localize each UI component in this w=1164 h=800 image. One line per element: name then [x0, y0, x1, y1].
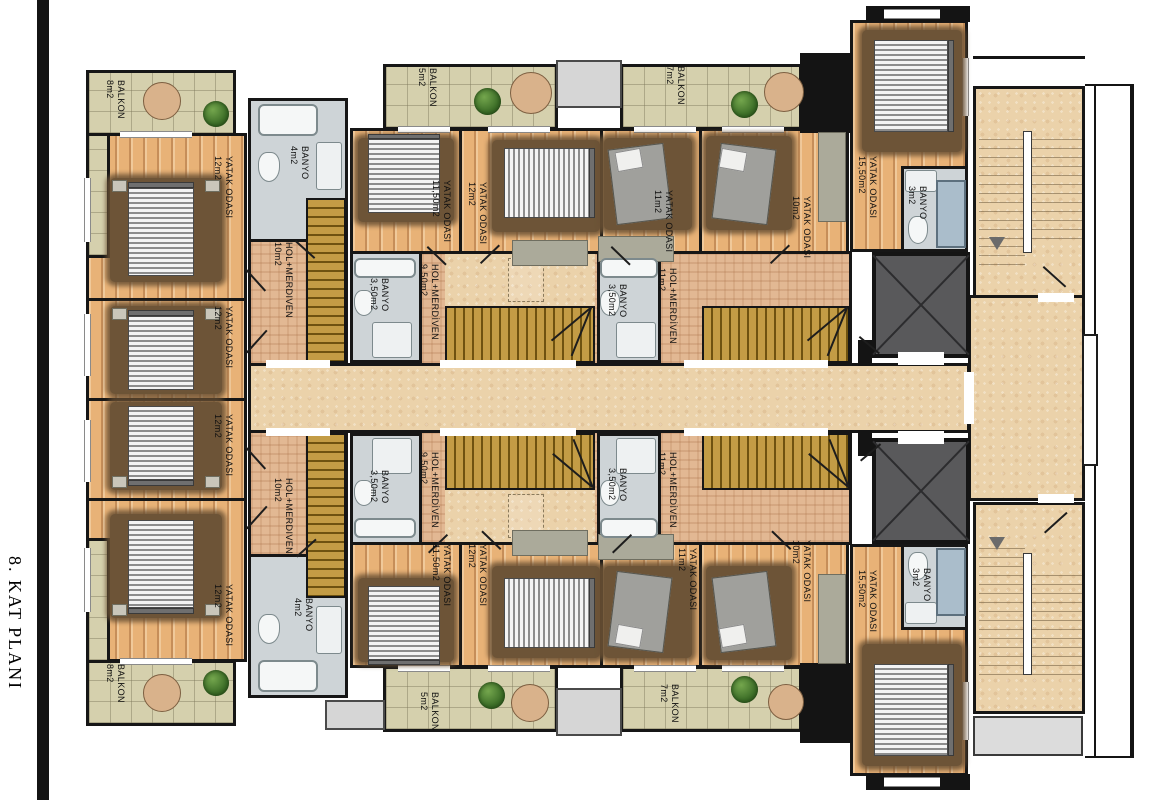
- room-label-hol-l-top: HOL+MERDIVEN10m2: [272, 242, 294, 318]
- balcony-table: [143, 674, 181, 712]
- bathtub: [258, 104, 318, 136]
- bathtub: [354, 258, 416, 278]
- balcony-door: [120, 658, 192, 665]
- elevator-shaft-top: [872, 252, 970, 358]
- window: [884, 777, 940, 787]
- room-area: 10m2: [790, 196, 801, 258]
- bathtub: [258, 660, 318, 692]
- room-label-bed-l1: YATAK ODASI12m2: [212, 156, 234, 218]
- room-name: YATAK ODASI: [867, 156, 878, 218]
- toilet: [258, 614, 280, 644]
- room-label-banyo-l-top: BANYO4m2: [288, 146, 310, 180]
- balcony-table: [764, 72, 804, 112]
- room-label-hol-c-top: HOL+MERDİVEN9,50m2: [418, 264, 440, 340]
- shower: [936, 180, 966, 248]
- room-name: HOL+MERDİVEN: [429, 452, 440, 528]
- room-area: 11m2: [676, 548, 687, 610]
- door-opening: [440, 428, 576, 436]
- plant: [731, 91, 758, 118]
- door-opening: [440, 360, 576, 368]
- room-area: 10m2: [272, 478, 283, 554]
- room-label-banyo-r-bot: BANYO3,50m2: [606, 468, 628, 502]
- room-name: BALKON: [669, 684, 680, 723]
- balcony-door: [634, 126, 696, 133]
- nightstand: [205, 476, 220, 488]
- room-name: YATAK ODASI: [223, 306, 234, 368]
- stair-railing: [1023, 131, 1032, 253]
- room-name: BALKON: [115, 664, 126, 703]
- stairwell-top: [973, 86, 1085, 298]
- room-label-bed-r1-bot: YATAK ODASI11m2: [676, 548, 698, 610]
- shower-tray: [616, 322, 656, 358]
- page-edge-bar: [37, 0, 49, 800]
- room-label-bed-fr-top: YATAK ODASI15,50m2: [856, 156, 878, 218]
- room-name: YATAK ODASI: [223, 584, 234, 646]
- pillow: [718, 148, 747, 172]
- room-area: 11m2: [656, 268, 667, 344]
- stair-direction-arrow: [989, 237, 1005, 250]
- toilet: [908, 216, 928, 244]
- balcony-table: [143, 82, 181, 120]
- room-label-bed-c2-bot: YATAK ODASI12m2: [466, 544, 488, 606]
- room-name: BALKON: [675, 66, 686, 105]
- room-label-banyo-l-bot: BANYO4m2: [292, 598, 314, 632]
- balcony-door: [722, 665, 784, 672]
- wardrobe: [512, 240, 588, 266]
- plant: [203, 670, 229, 696]
- bed: [128, 316, 194, 390]
- window: [84, 420, 91, 482]
- room-label-balkon-bl: BALKON8m2: [104, 664, 126, 703]
- bathtub: [354, 518, 416, 538]
- room-label-hol-c-bot: HOL+MERDİVEN9,50m2: [418, 452, 440, 528]
- balcony-door: [634, 665, 696, 672]
- room-area: 10m2: [272, 242, 283, 318]
- door-opening: [684, 360, 828, 368]
- room-area: 3,50m2: [368, 278, 379, 312]
- bed-headboard: [589, 148, 595, 218]
- room-area: 11m2: [656, 452, 667, 528]
- room-label-balkon-r-top: BALKON7m2: [664, 66, 686, 105]
- wall: [800, 53, 852, 133]
- door-opening: [1038, 494, 1074, 503]
- bed-headboard: [128, 608, 194, 614]
- stairs-right-bottom: [702, 433, 850, 490]
- room-name: BANYO: [303, 598, 314, 632]
- room-area: 9,50m2: [418, 264, 429, 340]
- shower: [936, 548, 966, 616]
- bed-headboard: [589, 578, 595, 648]
- room-label-banyo-c-bot: BANYO3,50m2: [368, 470, 390, 504]
- plant: [731, 676, 758, 703]
- room-name: YATAK ODASI: [441, 544, 452, 606]
- bed: [504, 148, 590, 218]
- sink: [905, 602, 937, 624]
- window: [962, 682, 969, 740]
- room-area: 5m2: [416, 68, 427, 107]
- room-label-balkon-c-bot: BALKON5m2: [418, 692, 440, 731]
- room-name: YATAK ODASI: [663, 190, 674, 252]
- room-area: 15,50m2: [856, 570, 867, 632]
- door-opening: [1038, 293, 1074, 302]
- room-area: 3m2: [906, 186, 917, 220]
- window: [962, 58, 969, 116]
- room-name: BANYO: [379, 470, 390, 504]
- stairs-left-top: [306, 198, 346, 363]
- room-area: 12m2: [466, 182, 477, 244]
- room-label-bed-r1-top: YATAK ODASI11m2: [652, 190, 674, 252]
- room-area: 4m2: [288, 146, 299, 180]
- door-opening: [266, 360, 330, 368]
- room-name: HOL+MERDIVEN: [283, 242, 294, 318]
- toilet: [258, 152, 280, 182]
- utility-box-top: [556, 60, 622, 108]
- room-area: 7m2: [658, 684, 669, 723]
- room-name: BALKON: [427, 68, 438, 107]
- room-label-balkon-tl: BALKON8m2: [104, 80, 126, 119]
- room-area: 12m2: [212, 414, 223, 476]
- room-label-banyo-c-top: BANYO3,50m2: [368, 278, 390, 312]
- room-label-balkon-c-top: BALKON5m2: [416, 68, 438, 107]
- room-label-banyo-fr-top: BANYO3m2: [906, 186, 928, 220]
- bed: [504, 578, 590, 648]
- room-label-bed-c2-top: YATAK ODASI12m2: [466, 182, 488, 244]
- room-name: HOL+MERDİVEN: [667, 452, 678, 528]
- room-name: BANYO: [379, 278, 390, 312]
- room-area: 8m2: [104, 80, 115, 119]
- room-name: YATAK ODASI: [477, 544, 488, 606]
- room-label-hol-l-bot: HOL+MERDIVEN10m2: [272, 478, 294, 554]
- room-area: 8m2: [104, 664, 115, 703]
- room-name: YATAK ODASI: [223, 414, 234, 476]
- room-area: 4m2: [292, 598, 303, 632]
- utility-box-bottom-left: [325, 700, 385, 730]
- balcony-table: [511, 684, 549, 722]
- plant: [203, 101, 229, 127]
- window: [84, 178, 91, 242]
- floor-plan-canvas: 8. KAT PLANI: [0, 0, 1164, 800]
- room-name: BANYO: [921, 568, 932, 602]
- window: [84, 314, 91, 376]
- room-area: 12m2: [212, 156, 223, 218]
- stairwell-bottom: [973, 502, 1085, 714]
- plant: [474, 88, 501, 115]
- balcony-door: [488, 665, 550, 672]
- room-name: YATAK ODASI: [801, 196, 812, 258]
- bed-headboard: [948, 40, 954, 132]
- balcony-table: [768, 684, 804, 720]
- room-name: HOL+MERDİVEN: [667, 268, 678, 344]
- balcony-table: [510, 72, 552, 114]
- room-name: YATAK ODASI: [477, 182, 488, 244]
- room-area: 12m2: [212, 306, 223, 368]
- elevator-door: [898, 431, 944, 444]
- room-name: BALKON: [115, 80, 126, 119]
- room-area: 3,50m2: [368, 470, 379, 504]
- room-label-bed-fr-bot: YATAK ODASI15,50m2: [856, 570, 878, 632]
- sink-counter: [316, 142, 342, 190]
- bed: [874, 664, 948, 756]
- room-name: YATAK ODASI: [223, 156, 234, 218]
- room-area: 11,50m2: [430, 180, 441, 242]
- room-area: 9,50m2: [418, 452, 429, 528]
- room-label-hol-r-bot: HOL+MERDİVEN11m2: [656, 452, 678, 528]
- window: [884, 9, 940, 19]
- wardrobe: [512, 530, 588, 556]
- bed-headboard: [368, 660, 440, 665]
- room-name: BANYO: [299, 146, 310, 180]
- room-label-bed-r2-top: YATAK ODASI10m2: [790, 196, 812, 258]
- room-area: 3,50m2: [606, 468, 617, 502]
- elevator-door: [898, 352, 944, 365]
- sink-counter: [316, 606, 342, 654]
- door-opening: [266, 428, 330, 436]
- room-label-bed-l4: YATAK ODASI12m2: [212, 584, 234, 646]
- nightstand: [112, 308, 127, 320]
- room-name: BANYO: [617, 284, 628, 318]
- corridor: [248, 363, 970, 433]
- room-area: 7m2: [664, 66, 675, 105]
- wardrobe: [818, 574, 846, 664]
- nightstand: [112, 180, 127, 192]
- bed: [128, 520, 194, 608]
- core-lobby: [968, 295, 1085, 501]
- facade-line: [1085, 756, 1134, 758]
- stair-direction-arrow: [989, 537, 1005, 550]
- elevator-shaft-bottom: [872, 438, 970, 544]
- balcony-door: [722, 126, 784, 133]
- bed: [128, 188, 194, 276]
- room-label-banyo-fr-bot: BANYO3m2: [910, 568, 932, 602]
- room-name: YATAK ODASI: [441, 180, 452, 242]
- shower-tray: [372, 438, 412, 474]
- entrance-canopy: [973, 716, 1083, 756]
- room-label-bed-c1-bot: YATAK ODASI11,50m2: [430, 544, 452, 606]
- wall: [800, 663, 852, 743]
- room-label-bed-l3: YATAK ODASI12m2: [212, 414, 234, 476]
- pillow: [614, 624, 643, 648]
- room-label-bed-c1-top: YATAK ODASI11,50m2: [430, 180, 452, 242]
- nightstand: [112, 604, 127, 616]
- room-area: 12m2: [466, 544, 477, 606]
- window: [84, 548, 91, 612]
- room-label-balkon-r-bot: BALKON7m2: [658, 684, 680, 723]
- room-label-banyo-r-top: BANYO3,50m2: [606, 284, 628, 318]
- balcony-door: [398, 665, 450, 672]
- utility-box-bottom: [556, 688, 622, 736]
- shower-tray: [372, 322, 412, 358]
- bed-headboard: [948, 664, 954, 756]
- bed-headboard: [128, 480, 194, 486]
- plant: [478, 682, 505, 709]
- room-name: YATAK ODASI: [867, 570, 878, 632]
- door-opening: [684, 428, 828, 436]
- room-area: 5m2: [418, 692, 429, 731]
- stairs-left-bottom: [306, 433, 346, 598]
- room-area: 3,50m2: [606, 284, 617, 318]
- room-name: YATAK ODASI: [801, 540, 812, 602]
- facade-line: [1130, 84, 1134, 758]
- wardrobe: [818, 132, 846, 222]
- room-label-bed-r2-bot: YATAK ODASI10m2: [790, 540, 812, 602]
- bed: [874, 40, 948, 132]
- room-name: BALKON: [429, 692, 440, 731]
- room-area: 15,50m2: [856, 156, 867, 218]
- room-name: BANYO: [917, 186, 928, 220]
- balcony-door: [120, 131, 192, 138]
- facade-line: [1085, 84, 1134, 86]
- floor-title: 8. KAT PLANI: [4, 556, 25, 776]
- room-label-bed-l2: YATAK ODASI12m2: [212, 306, 234, 368]
- room-name: HOL+MERDIVEN: [283, 478, 294, 554]
- room-area: 12m2: [212, 584, 223, 646]
- room-name: HOL+MERDİVEN: [429, 264, 440, 340]
- room-area: 3m2: [910, 568, 921, 602]
- facade-line: [973, 56, 1085, 59]
- room-name: BANYO: [617, 468, 628, 502]
- room-area: 11,50m2: [430, 544, 441, 606]
- bed: [128, 406, 194, 480]
- stair-railing: [1023, 553, 1032, 675]
- balcony-door: [398, 126, 450, 133]
- room-area: 10m2: [790, 540, 801, 602]
- balcony-door: [488, 126, 550, 133]
- door-opening: [964, 372, 974, 424]
- room-area: 11m2: [652, 190, 663, 252]
- bay-window: [1082, 334, 1098, 466]
- nightstand: [112, 476, 127, 488]
- bathtub: [600, 258, 658, 278]
- room-label-hol-r-top: HOL+MERDİVEN11m2: [656, 268, 678, 344]
- room-name: YATAK ODASI: [687, 548, 698, 610]
